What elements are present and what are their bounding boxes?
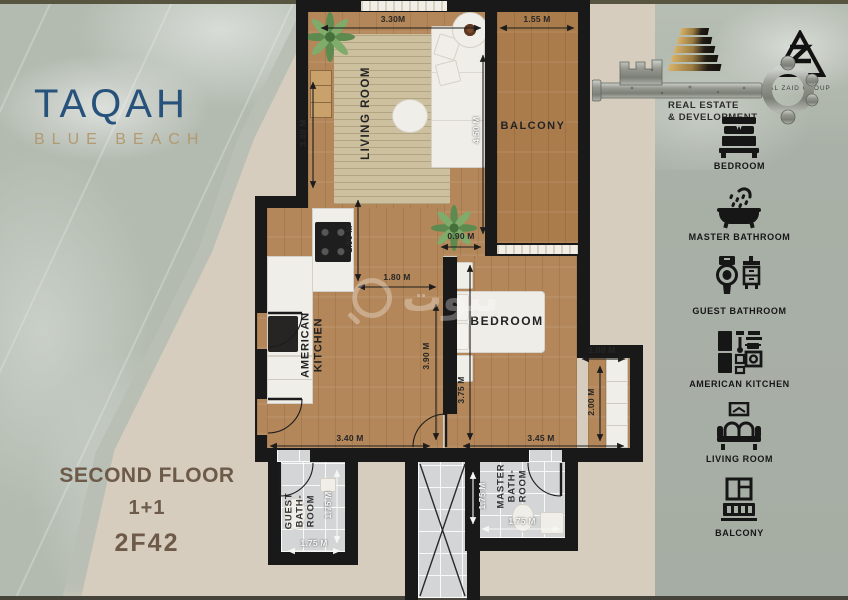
watermark-text: بيوت xyxy=(402,278,499,318)
site-watermark: بيوت xyxy=(352,278,499,318)
flyer-canvas: TAQAH BLUE BEACH SECOND FLOOR 1+1 2F42 xyxy=(0,0,848,600)
magnifier-icon xyxy=(352,278,392,318)
